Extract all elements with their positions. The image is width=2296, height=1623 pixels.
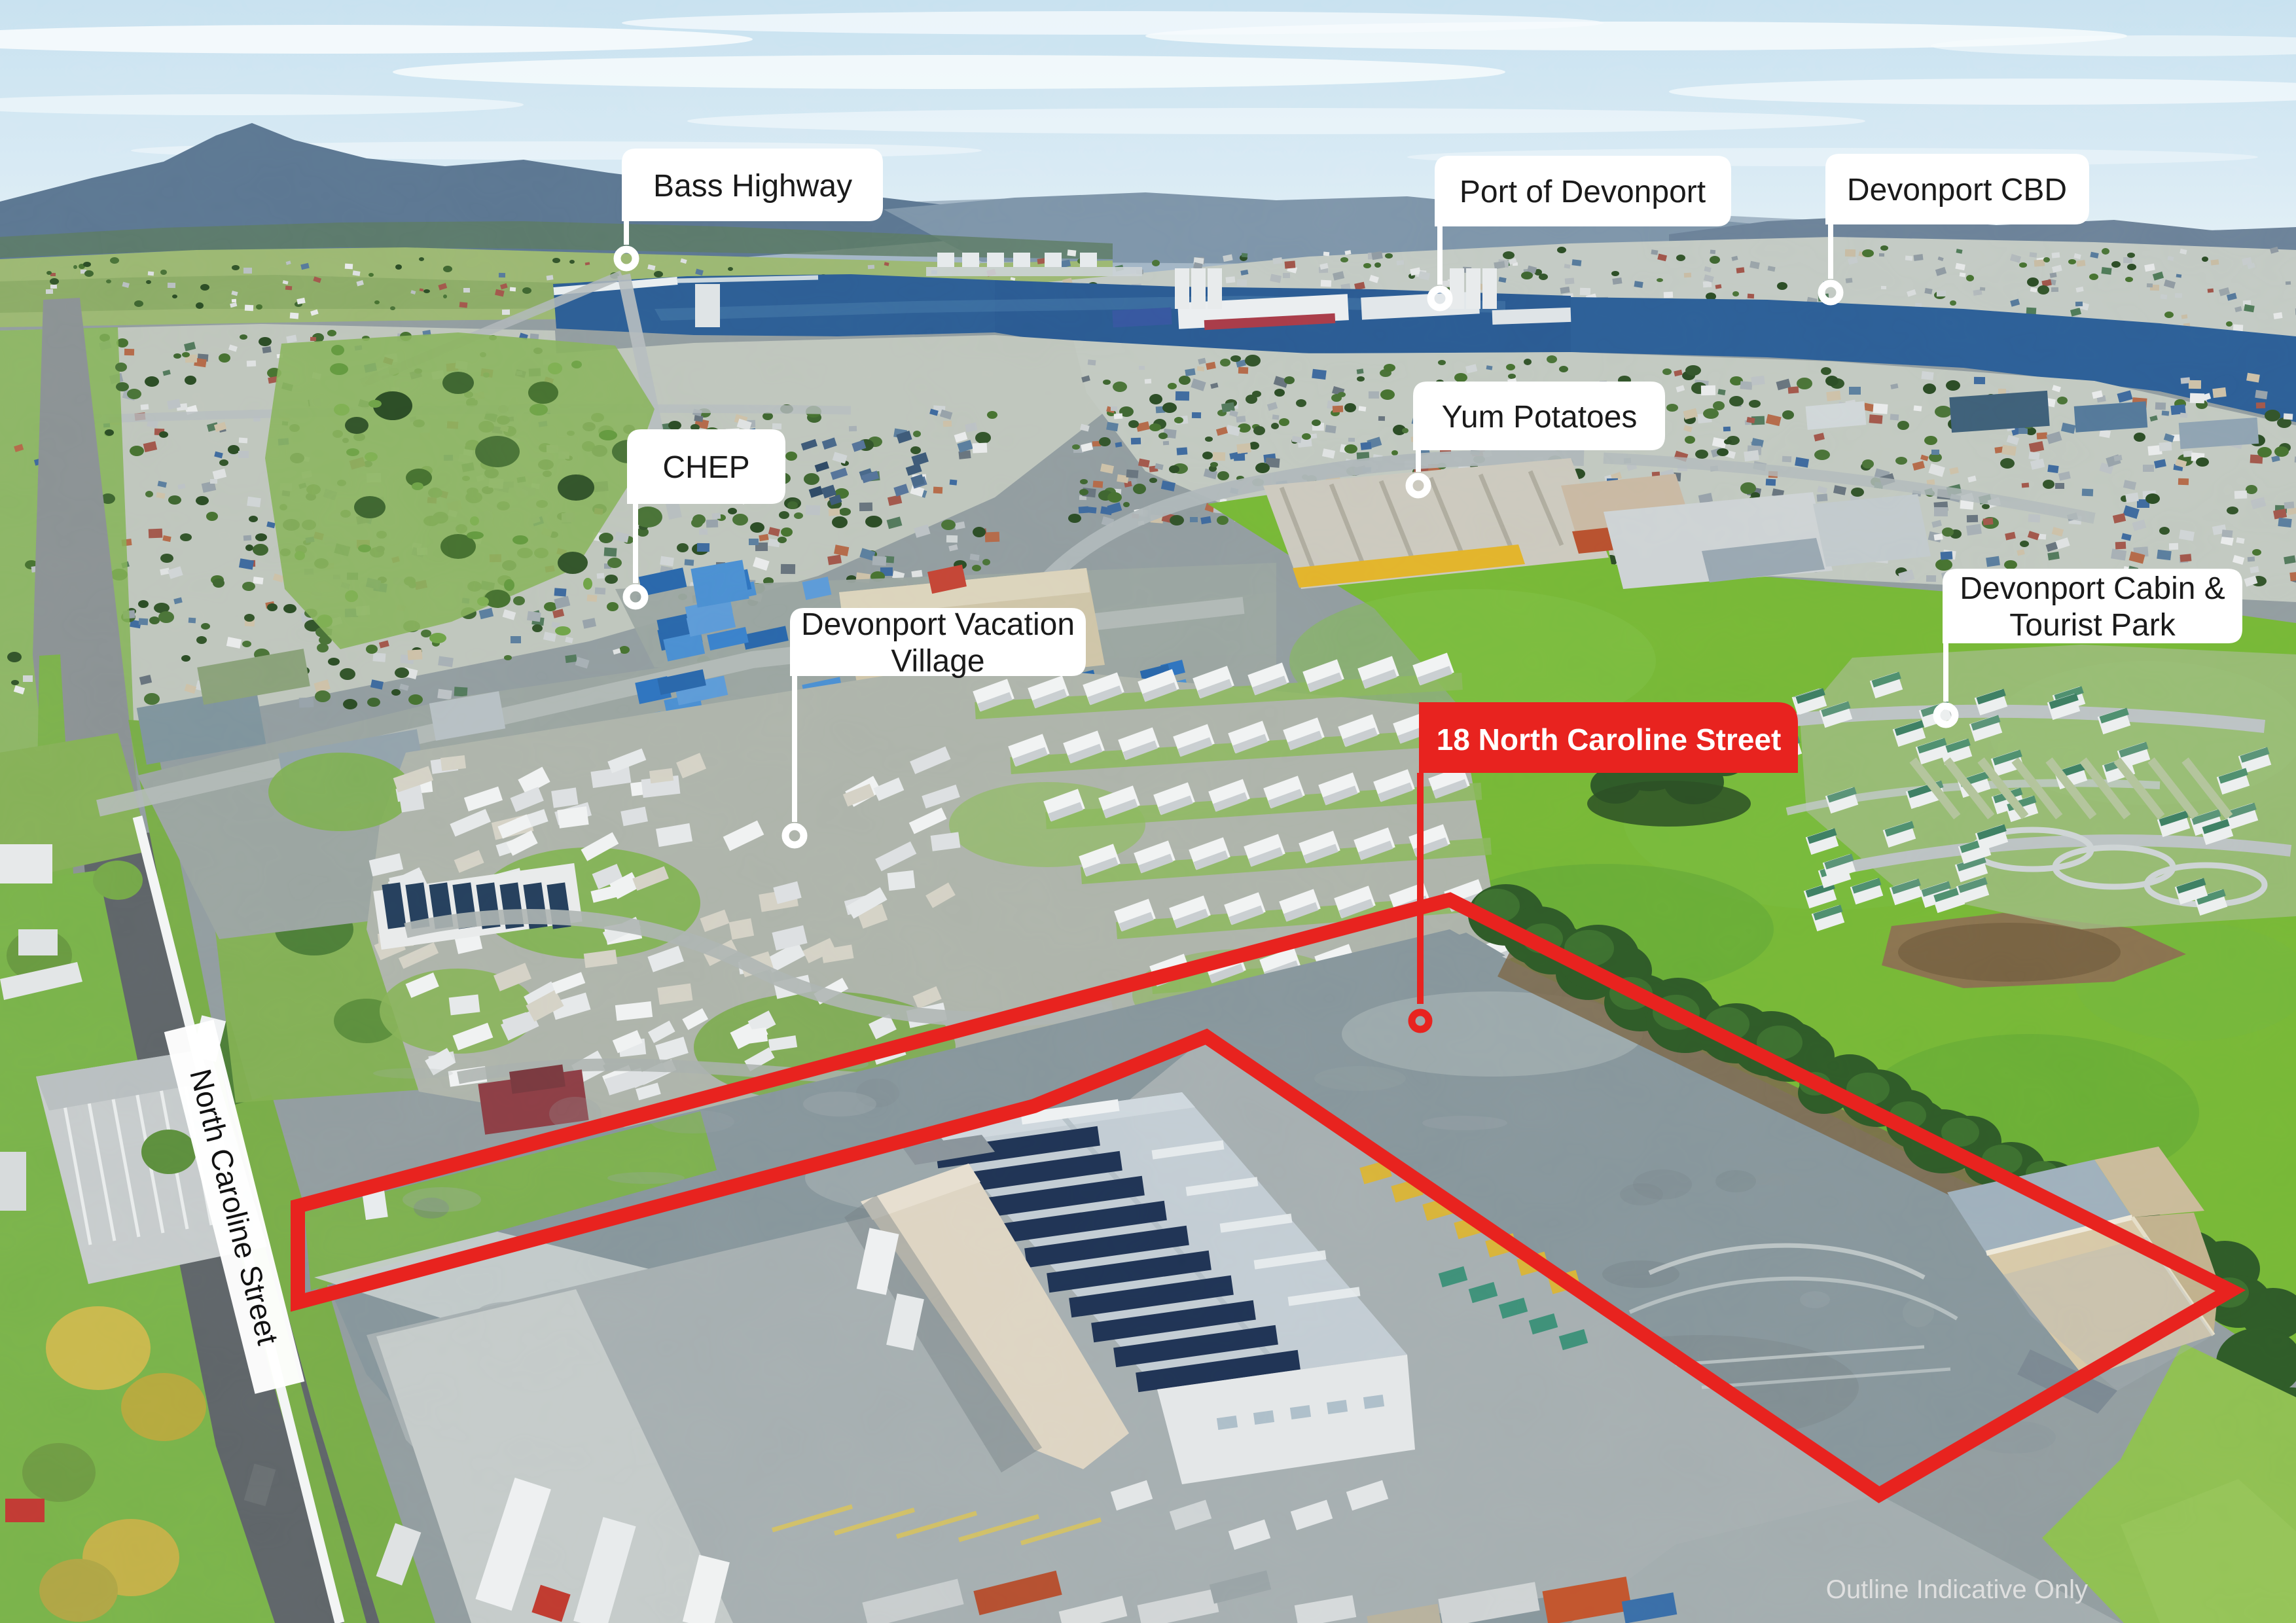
svg-text:Port of Devonport: Port of Devonport — [1460, 175, 1706, 209]
svg-text:Devonport Vacation: Devonport Vacation — [801, 607, 1075, 642]
svg-text:Devonport CBD: Devonport CBD — [1847, 173, 2067, 207]
svg-text:Outline Indicative Only: Outline Indicative Only — [1826, 1575, 2088, 1604]
svg-text:Devonport Cabin &: Devonport Cabin & — [1960, 571, 2225, 606]
svg-text:Tourist Park: Tourist Park — [2009, 608, 2176, 643]
svg-text:CHEP: CHEP — [662, 450, 749, 485]
svg-text:Yum Potatoes: Yum Potatoes — [1442, 400, 1638, 435]
svg-text:Bass Highway: Bass Highway — [653, 169, 852, 204]
svg-text:18 North Caroline Street: 18 North Caroline Street — [1437, 722, 1782, 757]
svg-text:Village: Village — [891, 644, 984, 679]
